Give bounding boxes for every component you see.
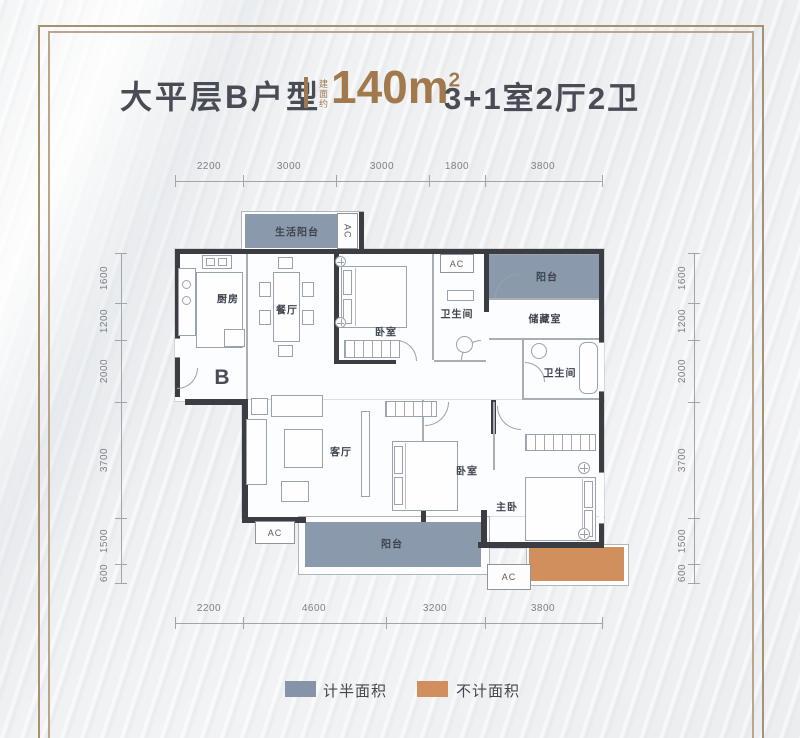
window <box>175 338 180 358</box>
stove-burner-icon <box>182 296 191 305</box>
dim-label: 600 <box>99 551 111 595</box>
dim-tick <box>115 402 127 403</box>
dim-label: 3000 <box>267 161 311 173</box>
dim-label: 1800 <box>435 161 479 173</box>
room-label-living: 客厅 <box>330 444 352 459</box>
room-label-service-balcony: 生活阳台 <box>275 224 319 239</box>
armchair-icon <box>281 481 309 502</box>
toilet-icon <box>456 336 473 353</box>
partition <box>489 338 599 340</box>
room-label-master: 主卧 <box>496 499 518 514</box>
wall <box>334 254 339 364</box>
dim-tick <box>688 402 700 403</box>
chair-icon <box>259 310 271 325</box>
dim-label: 3800 <box>521 603 565 615</box>
dim-tick <box>175 175 176 187</box>
dim-label: 3700 <box>99 438 111 482</box>
dim-label: 600 <box>677 551 689 595</box>
legend-swatch-half-area <box>285 681 316 697</box>
partition <box>522 398 599 400</box>
window <box>599 472 604 524</box>
dim-tick <box>115 518 127 519</box>
legend-swatch-excluded-area <box>417 681 448 697</box>
nightstand-icon <box>335 256 346 267</box>
pillow-icon <box>343 270 352 295</box>
dim-label: 1200 <box>677 299 689 343</box>
partition <box>493 402 495 470</box>
kitchen-sink-basin <box>218 258 227 266</box>
area-prefix: 建面约 <box>317 79 330 111</box>
dim-tick <box>243 617 244 629</box>
dim-tick <box>115 564 127 565</box>
bathtub-icon <box>579 342 598 394</box>
wall <box>484 254 489 312</box>
room-label-kitchen: 厨房 <box>217 291 239 306</box>
partition <box>489 298 599 300</box>
room-label-dining: 餐厅 <box>276 302 298 317</box>
wall <box>481 510 487 548</box>
chair-icon <box>302 282 314 297</box>
dim-tick <box>602 175 603 187</box>
ac-unit: AC <box>255 521 295 544</box>
room-label-bath2: 卫生间 <box>544 365 577 380</box>
dim-label: 1200 <box>99 299 111 343</box>
legend-label-excluded-area: 不计面积 <box>456 680 520 701</box>
wardrobe-icon <box>344 340 400 358</box>
ac-unit: AC <box>440 254 474 273</box>
tv-cabinet-icon <box>361 411 370 497</box>
dim-label: 1600 <box>677 256 689 300</box>
dim-tick <box>386 617 387 629</box>
wall <box>334 360 396 364</box>
partition <box>522 338 524 400</box>
title-divider <box>304 77 308 108</box>
floorplan: AC <box>175 210 630 602</box>
room-label-bath1: 卫生间 <box>441 306 474 321</box>
dim-tick <box>485 175 486 187</box>
dim-tick <box>485 617 486 629</box>
dim-tick <box>688 518 700 519</box>
dim-label: 3200 <box>413 603 457 615</box>
dim-label: 1600 <box>99 256 111 300</box>
dim-label: 2200 <box>187 603 231 615</box>
nightstand-icon <box>578 462 590 474</box>
dim-tick <box>688 583 700 584</box>
dim-tick <box>688 564 700 565</box>
dim-tick <box>243 175 244 187</box>
fridge-icon <box>224 329 245 347</box>
bed-line <box>405 443 406 509</box>
dim-tick <box>115 583 127 584</box>
wall <box>359 212 364 250</box>
excluded-area-fill <box>529 547 624 581</box>
floorplan-poster: 大平层B户型 建面约 140m2 3+1室2厅2卫 2200 3000 3000… <box>0 0 800 738</box>
dim-line-bottom <box>175 623 603 624</box>
pillow-icon <box>394 477 403 505</box>
wall <box>185 399 247 405</box>
bed-line <box>355 268 356 326</box>
ac-unit: AC <box>487 564 531 590</box>
dim-label: 3000 <box>360 161 404 173</box>
dim-tick <box>602 617 603 629</box>
dim-label: 2000 <box>677 349 689 393</box>
room-label-bedroom2: 卧室 <box>456 463 478 478</box>
sofa-icon <box>246 419 267 485</box>
nightstand-icon <box>335 317 346 328</box>
kitchen-sink-basin <box>206 258 215 266</box>
room-label-balcony-top: 阳台 <box>536 269 558 284</box>
stove-burner-icon <box>182 280 191 289</box>
layout-text: 3+1室2厅2卫 <box>444 73 640 118</box>
dim-tick <box>175 617 176 629</box>
area-number: 140m <box>331 61 449 113</box>
dim-tick <box>115 340 127 341</box>
dim-tick <box>336 175 337 187</box>
chair-icon <box>278 257 293 269</box>
wardrobe-icon <box>385 401 437 417</box>
dim-tick <box>688 253 700 254</box>
dim-tick <box>429 175 430 187</box>
chair-icon <box>278 345 293 357</box>
chair-icon <box>302 310 314 325</box>
dim-label: 3700 <box>677 438 689 482</box>
dim-tick <box>688 303 700 304</box>
window <box>599 342 604 392</box>
page-title: 大平层B户型 <box>120 72 321 118</box>
wall <box>478 542 604 548</box>
wall <box>175 249 604 254</box>
dim-label: 3800 <box>521 161 565 173</box>
coffee-table-icon <box>284 429 323 468</box>
area-value: 140m2 <box>331 64 460 110</box>
dim-tick <box>115 253 127 254</box>
ac-unit: AC <box>337 213 358 249</box>
partition <box>434 360 486 362</box>
room-label-bedroom1: 卧室 <box>375 324 397 339</box>
chair-icon <box>259 282 271 297</box>
dim-line-top <box>175 181 603 182</box>
partition <box>432 254 434 360</box>
unit-marker-b: B <box>214 366 229 390</box>
wardrobe-icon <box>525 434 596 451</box>
dim-label: 2000 <box>99 349 111 393</box>
nightstand-icon <box>578 528 590 540</box>
sofa-icon <box>271 395 323 417</box>
pillow-icon <box>584 481 593 508</box>
legend-label-half-area: 计半面积 <box>323 680 387 701</box>
dim-tick <box>115 303 127 304</box>
room-label-storage: 储藏室 <box>529 311 562 326</box>
armchair-icon <box>251 398 268 415</box>
dim-label: 4600 <box>292 603 336 615</box>
dim-label: 2200 <box>187 161 231 173</box>
room-label-balcony-bottom: 阳台 <box>381 536 403 551</box>
toilet-icon <box>531 343 547 359</box>
bathroom-sink-icon <box>447 290 474 301</box>
dim-tick <box>688 340 700 341</box>
pillow-icon <box>394 446 403 474</box>
partition <box>246 254 248 399</box>
